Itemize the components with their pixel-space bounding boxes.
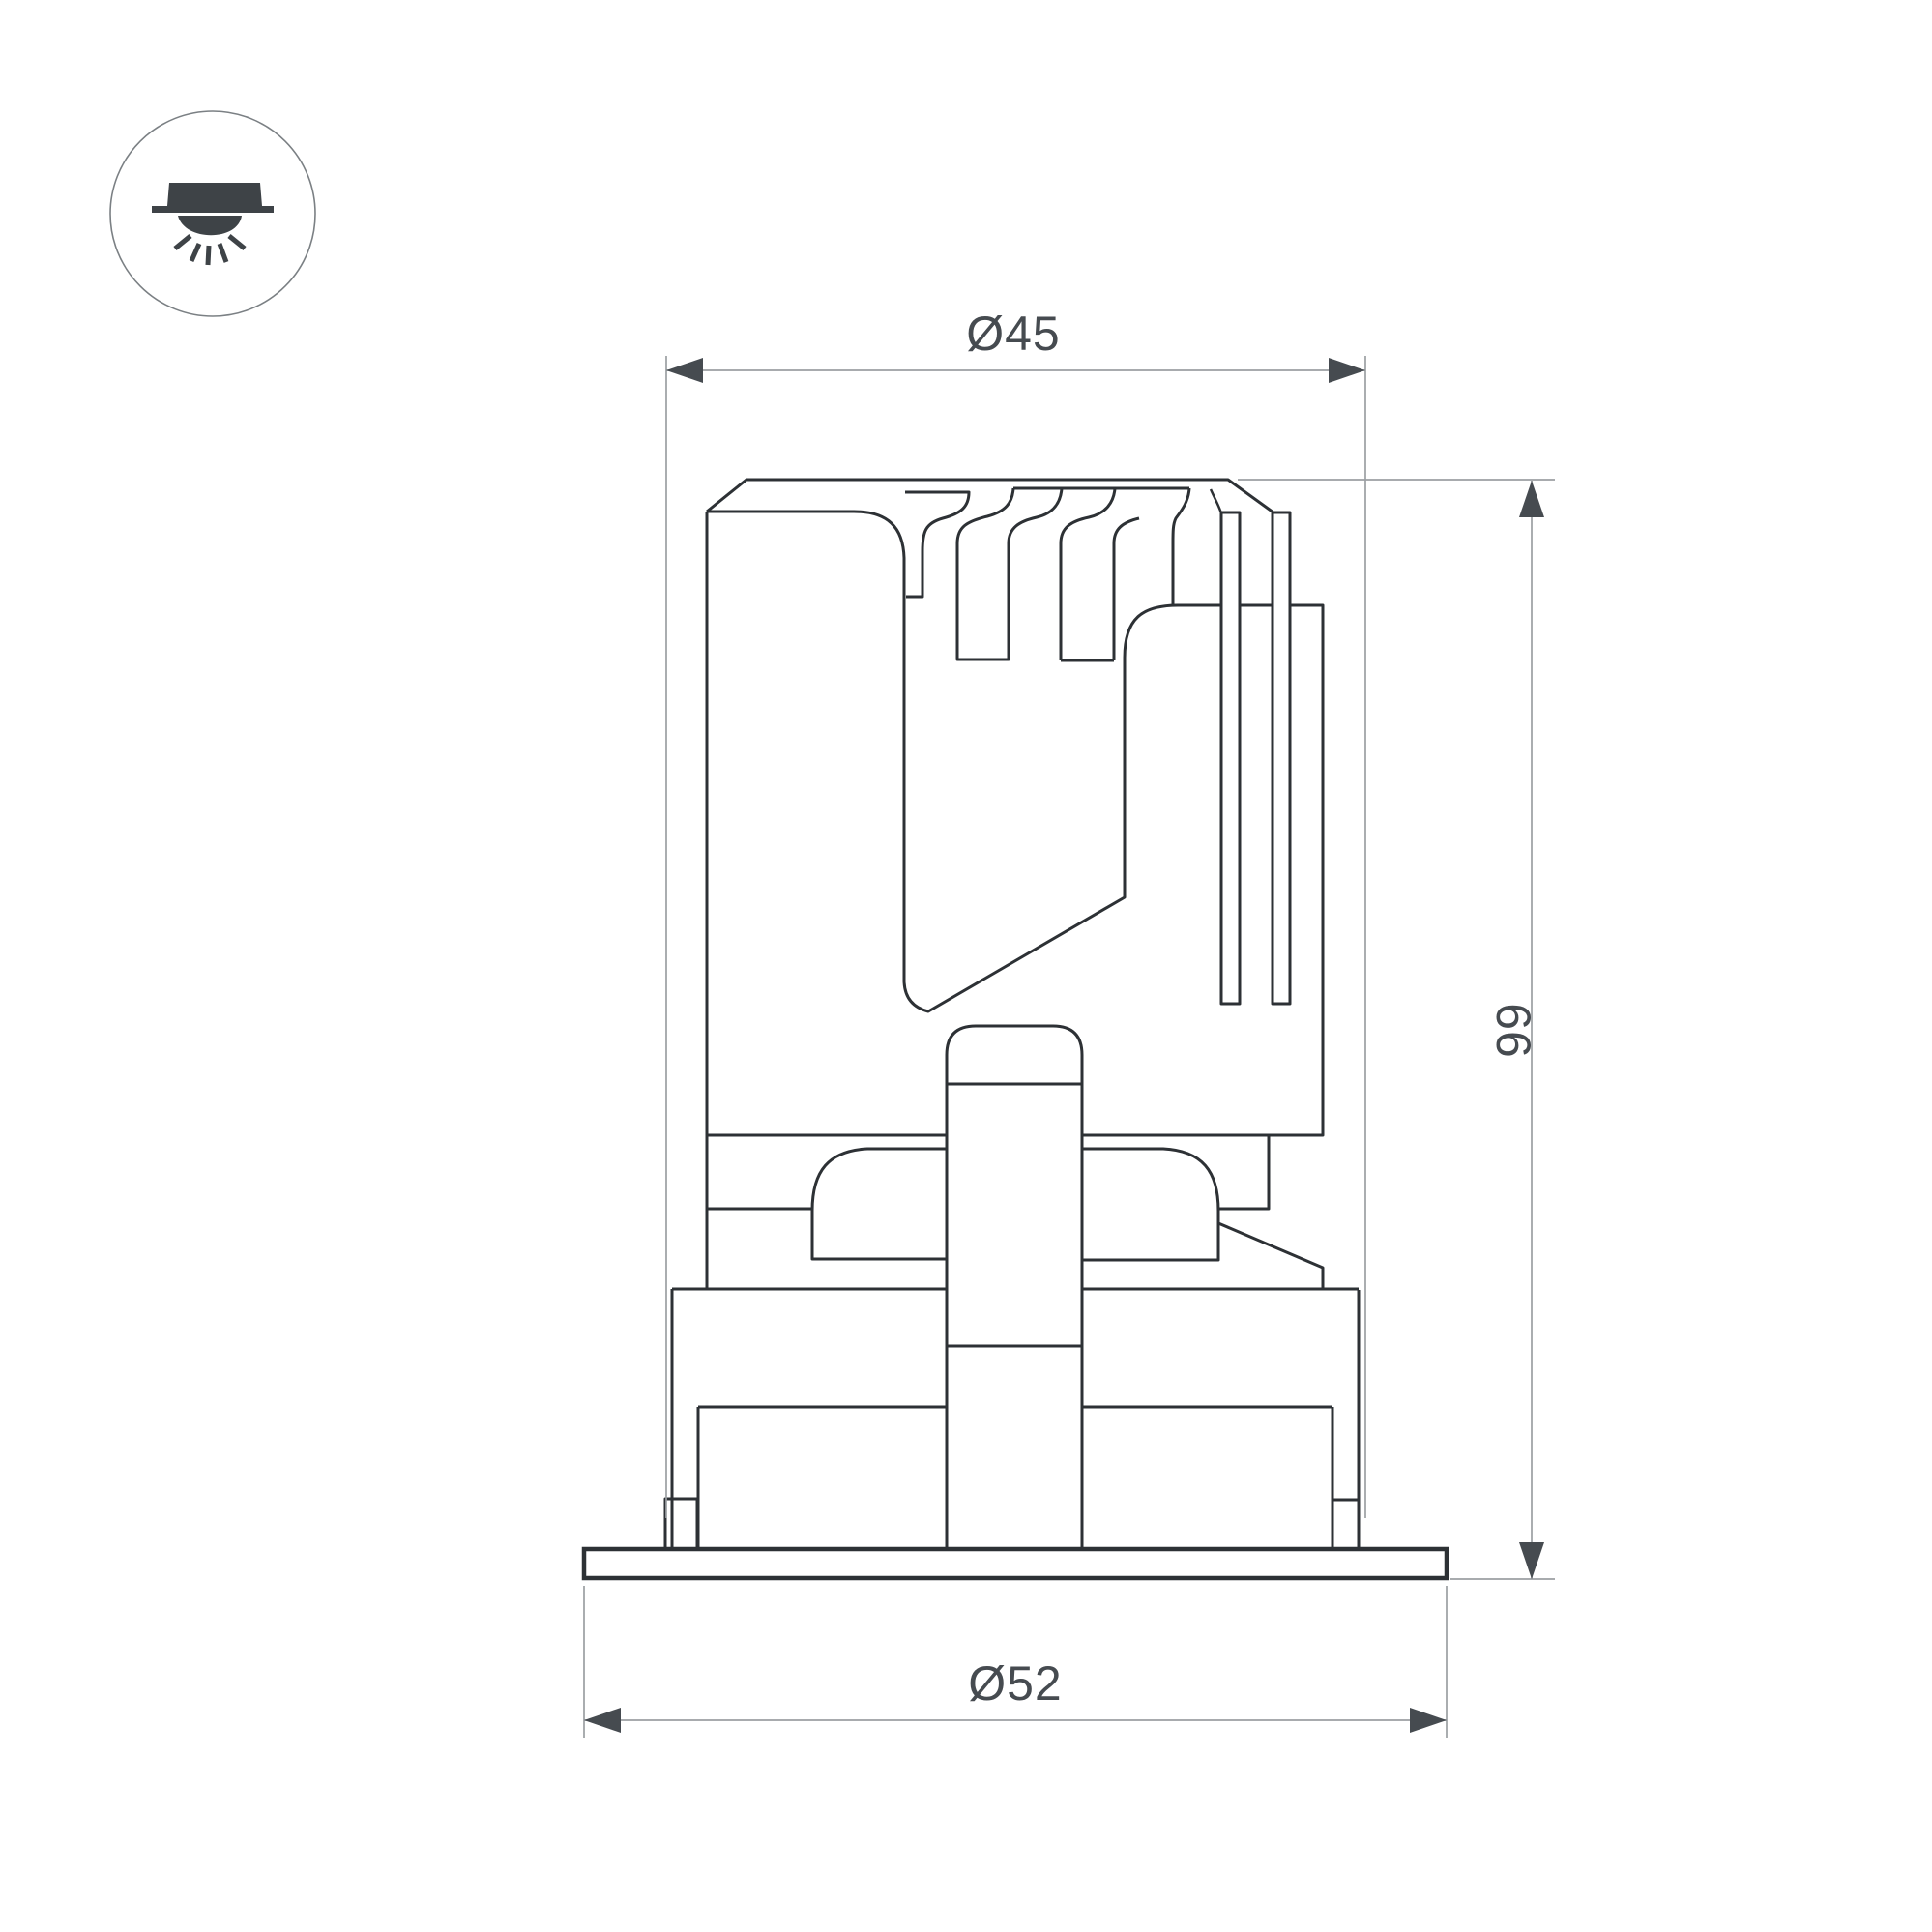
thin-fins [1221, 512, 1290, 1004]
fin-hook-curve [1211, 489, 1221, 513]
cooling-fin-4 [1173, 488, 1189, 605]
dimension-label-height: 66 [1486, 1003, 1540, 1059]
thin-fin-left [1221, 512, 1240, 1004]
technical-drawing: Ø45 66 Ø52 [0, 0, 1932, 1932]
thin-fin-right [1273, 512, 1290, 1004]
right-lobe [1082, 1149, 1218, 1260]
arrowhead-up [1519, 481, 1544, 517]
cooling-fin-1 [905, 492, 969, 597]
left-lobe [812, 1149, 948, 1259]
cooling-fin-2 [957, 488, 1062, 659]
arrowhead-right [1410, 1708, 1447, 1733]
left-foot [665, 1499, 697, 1549]
dimension-label-top: Ø45 [966, 307, 1061, 361]
central-stem [947, 1026, 1082, 1549]
trim-flange [584, 1549, 1447, 1578]
dimension-label-flange: Ø52 [968, 1656, 1063, 1711]
arrowhead-right [1329, 358, 1365, 383]
dimension-flange-diameter: Ø52 [584, 1586, 1447, 1738]
arrowhead-left [584, 1708, 621, 1733]
right-wedge [1218, 1223, 1323, 1290]
drawing-canvas: Ø45 66 Ø52 [0, 0, 1932, 1932]
right-step [1218, 1135, 1269, 1209]
arrowhead-down [1519, 1542, 1544, 1579]
right-foot [1332, 1500, 1359, 1549]
recessed-ceiling-light-icon [110, 111, 315, 316]
arrowhead-left [666, 358, 703, 383]
